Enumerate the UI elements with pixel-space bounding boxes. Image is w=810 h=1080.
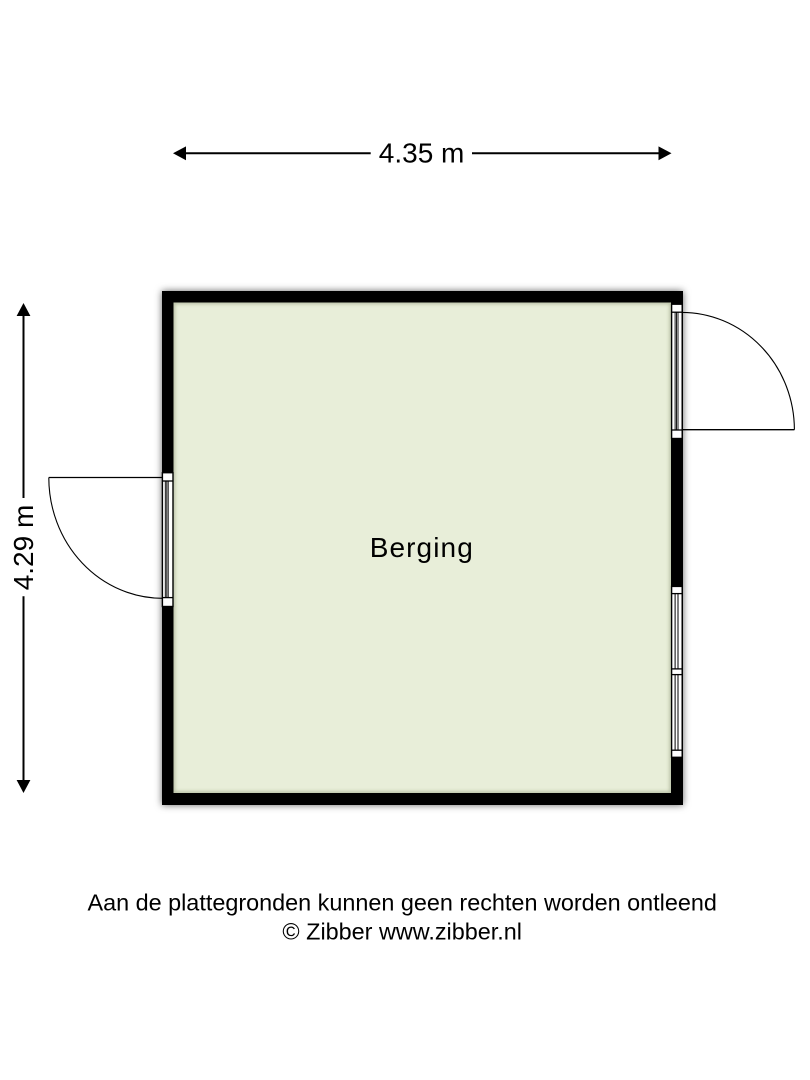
svg-text:© Zibber www.zibber.nl: © Zibber www.zibber.nl <box>282 919 522 945</box>
svg-text:Berging: Berging <box>370 532 474 563</box>
svg-text:4.29 m: 4.29 m <box>8 505 39 591</box>
svg-text:Aan de plattegronden kunnen ge: Aan de plattegronden kunnen geen rechten… <box>87 890 716 916</box>
svg-text:4.35 m: 4.35 m <box>379 137 465 168</box>
